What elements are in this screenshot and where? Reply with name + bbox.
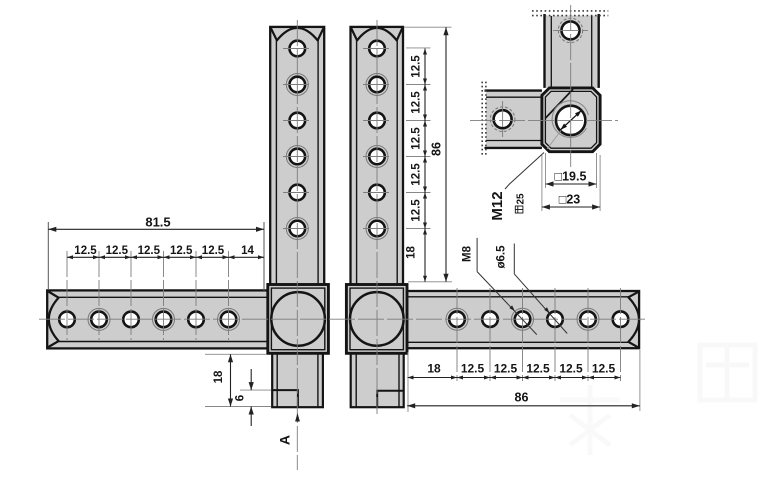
svg-text:12.5: 12.5 bbox=[411, 127, 423, 150]
svg-text:12.5: 12.5 bbox=[411, 163, 423, 186]
svg-text:81.5: 81.5 bbox=[145, 215, 170, 230]
svg-text:12.5: 12.5 bbox=[74, 245, 97, 257]
svg-text:18: 18 bbox=[213, 370, 225, 383]
svg-text:12.5: 12.5 bbox=[411, 55, 423, 78]
svg-text:18: 18 bbox=[406, 246, 418, 259]
svg-text:12.5: 12.5 bbox=[592, 362, 616, 376]
svg-text:12.5: 12.5 bbox=[411, 91, 423, 114]
svg-text:A: A bbox=[277, 435, 293, 445]
svg-text:12.5: 12.5 bbox=[461, 362, 485, 376]
svg-text:12.5: 12.5 bbox=[202, 245, 225, 257]
svg-text:12.5: 12.5 bbox=[170, 245, 193, 257]
svg-text:□19.5: □19.5 bbox=[555, 170, 587, 184]
svg-text:14: 14 bbox=[241, 245, 254, 257]
svg-text:12.5: 12.5 bbox=[559, 362, 583, 376]
svg-text:ø6.5: ø6.5 bbox=[496, 245, 508, 269]
svg-text:12.5: 12.5 bbox=[138, 245, 161, 257]
svg-text:12.5: 12.5 bbox=[494, 362, 518, 376]
svg-text:12.5: 12.5 bbox=[411, 199, 423, 222]
svg-text:12.5: 12.5 bbox=[106, 245, 129, 257]
svg-text:25: 25 bbox=[515, 193, 526, 205]
svg-text:M8: M8 bbox=[462, 245, 474, 262]
svg-text:86: 86 bbox=[430, 142, 444, 156]
svg-text:6: 6 bbox=[235, 395, 247, 401]
svg-text:□23: □23 bbox=[559, 193, 581, 207]
svg-text:86: 86 bbox=[515, 391, 529, 405]
svg-text:18: 18 bbox=[427, 362, 441, 376]
svg-text:M12: M12 bbox=[489, 191, 506, 220]
svg-text:12.5: 12.5 bbox=[526, 362, 550, 376]
